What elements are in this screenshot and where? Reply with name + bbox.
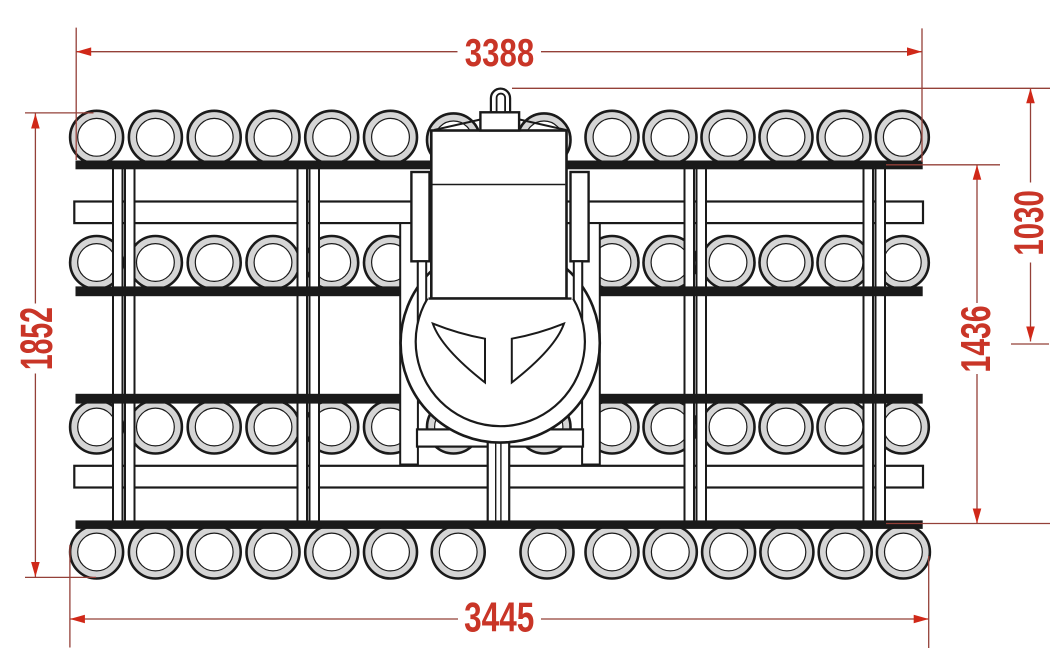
svg-text:3445: 3445 — [464, 593, 534, 641]
svg-text:1436: 1436 — [952, 305, 999, 372]
svg-text:3388: 3388 — [465, 32, 534, 75]
svg-text:1852: 1852 — [11, 307, 61, 370]
svg-text:1030: 1030 — [1005, 190, 1053, 255]
